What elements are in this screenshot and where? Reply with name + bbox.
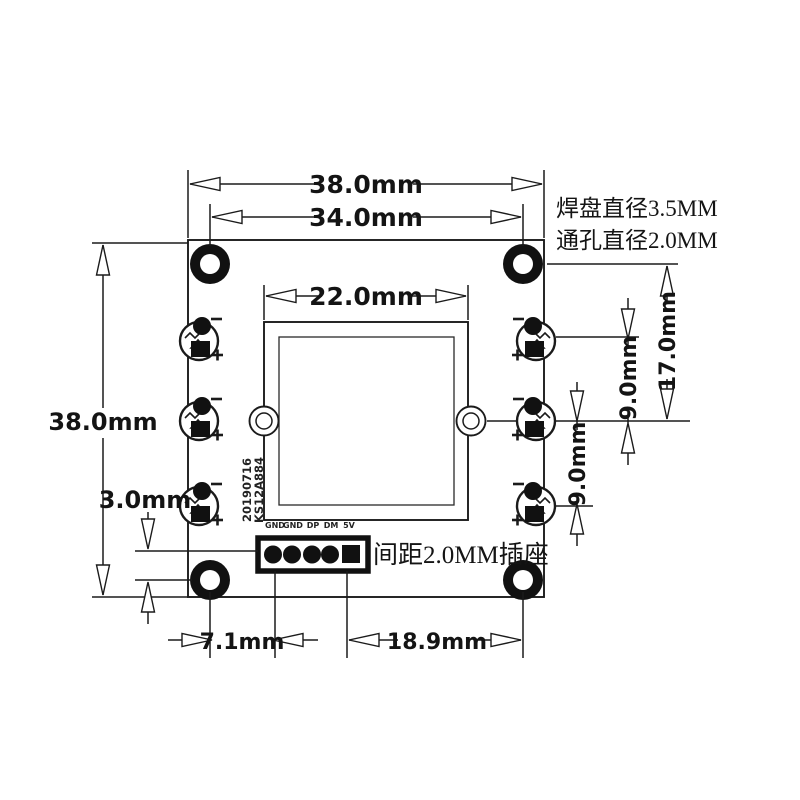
dim-pin-to-hole: 18.9mm — [349, 630, 521, 655]
pin-label-5: 5V — [343, 521, 356, 530]
connector-pin-5-square — [342, 545, 360, 563]
note-hole-diameter: 通孔直径2.0MM — [556, 228, 718, 253]
dim-label-board-width-top: 38.0mm — [309, 170, 423, 199]
sensor-window — [264, 322, 468, 520]
sensor-outer-frame — [264, 322, 468, 520]
led-left-middle — [180, 397, 223, 441]
led-right-bottom — [512, 482, 555, 526]
pin-label-3: DP — [307, 521, 320, 530]
dim-label-hole-to-pin: 7.1mm — [200, 630, 285, 655]
dim-led-pitch-lower: 9.0mm — [566, 382, 591, 546]
dim-hole-to-pin: 7.1mm — [168, 630, 318, 655]
dim-board-height-left: 38.0mm — [48, 243, 188, 597]
lens-hole-right-inner — [463, 413, 479, 429]
dim-sensor-width: 22.0mm — [264, 282, 468, 320]
connector-pin-labels: GND GND DP DM 5V — [265, 521, 356, 530]
connector-pin-4 — [321, 546, 339, 564]
silkscreen-model: KS12A884 — [252, 457, 266, 523]
dim-label-pin-to-hole: 18.9mm — [387, 630, 487, 655]
pin-label-2: GND — [283, 521, 303, 530]
lens-mount-holes — [250, 407, 486, 436]
connector-pin-2 — [283, 546, 301, 564]
dim-connector-offset: 3.0mm — [99, 486, 258, 624]
dim-label-led-pitch-upper: 9.0mm — [617, 336, 642, 421]
led-right-top — [512, 317, 555, 361]
dim-label-led-pitch-lower: 9.0mm — [566, 422, 591, 507]
dim-label-sensor-width: 22.0mm — [309, 282, 423, 311]
lens-hole-left-inner — [256, 413, 272, 429]
silkscreen-text: 20190716 KS12A884 — [240, 457, 266, 523]
mounting-hole-top-left — [190, 244, 230, 284]
led-right-middle — [512, 397, 555, 441]
led-left-top — [180, 317, 223, 361]
pcb-dimension-drawing-page: GND GND DP DM 5V 20190716 KS12A884 焊盘直径3… — [0, 0, 800, 800]
connector-pin-3 — [303, 546, 321, 564]
pin-label-4: DM — [324, 521, 339, 530]
connector-pin-1 — [264, 546, 282, 564]
dim-label-hole-to-center: 17.0mm — [656, 291, 681, 391]
dim-label-hole-spacing: 34.0mm — [309, 203, 423, 232]
pcb-dimension-drawing: GND GND DP DM 5V 20190716 KS12A884 焊盘直径3… — [0, 0, 800, 800]
dim-led-pitch-upper: 9.0mm — [617, 298, 642, 465]
note-pad-diameter: 焊盘直径3.5MM — [556, 196, 718, 221]
mounting-hole-top-right — [503, 244, 543, 284]
note-socket-pitch: 间距2.0MM插座 — [373, 541, 549, 569]
dim-hole-to-center: 17.0mm — [656, 266, 681, 419]
dim-label-board-height: 38.0mm — [48, 408, 157, 436]
sensor-inner-frame — [279, 337, 454, 505]
dim-label-connector-offset: 3.0mm — [99, 486, 192, 514]
connector: GND GND DP DM 5V — [258, 521, 368, 571]
